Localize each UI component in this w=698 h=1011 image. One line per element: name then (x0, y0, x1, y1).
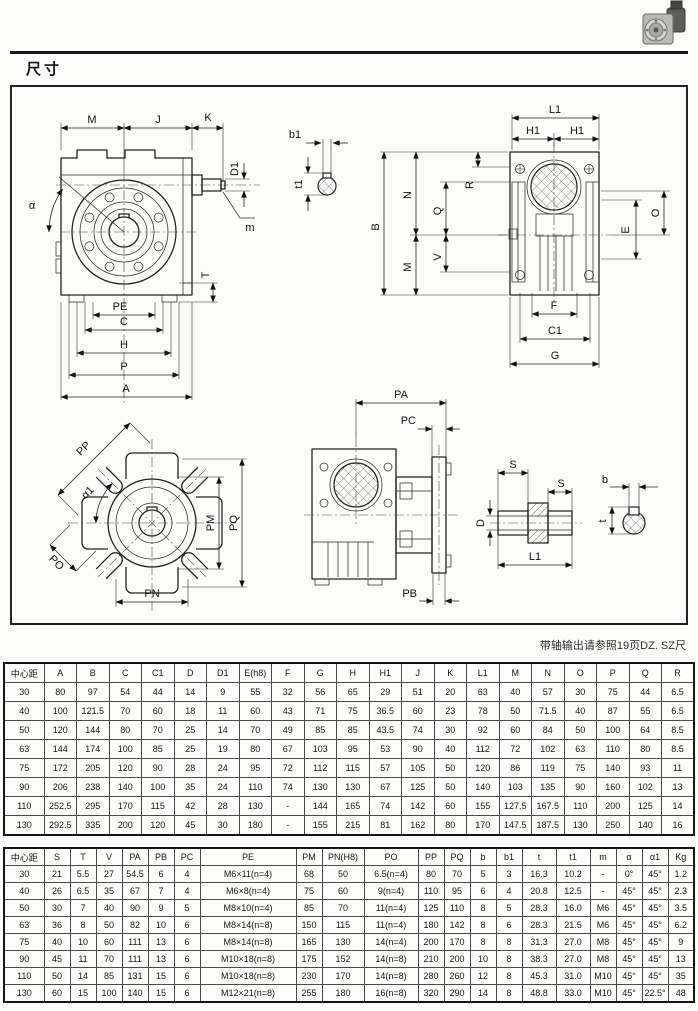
table-cell: 252.5 (44, 797, 77, 816)
table-cell: 45 (174, 816, 207, 836)
table-cell: 84 (532, 721, 565, 740)
table-cell: 119 (532, 759, 565, 778)
table-cell: 75 (597, 683, 630, 702)
table-cell: 30 (4, 683, 44, 702)
table-cell: 200 (418, 934, 444, 951)
table-cell: 25 (174, 721, 207, 740)
table-cell: 22.5° (642, 985, 668, 1003)
dim-label-pe: PE (113, 301, 128, 313)
table-cell: 74 (369, 797, 402, 816)
table-cell: 4 (496, 883, 522, 900)
column-header: Q (629, 663, 662, 683)
table-cell: 170 (109, 797, 142, 816)
table-cell: 45° (616, 968, 642, 985)
dim-label-pc: PC (401, 415, 416, 427)
column-header: L1 (467, 663, 500, 683)
table-cell: 0° (616, 866, 642, 883)
table-cell: 80 (629, 740, 662, 759)
table-cell: 111 (122, 951, 148, 968)
dim-label-t-foot: T (200, 271, 212, 278)
table-cell: 95 (444, 883, 470, 900)
table-cell: 8 (496, 985, 522, 1003)
table-cell: 200 (109, 816, 142, 836)
column-header: B (77, 663, 110, 683)
table-cell: 170 (467, 816, 500, 836)
table-cell: 27.0 (556, 951, 590, 968)
table-cell: 14 (207, 721, 240, 740)
column-header: PB (148, 848, 174, 866)
table-cell: 100 (142, 778, 175, 797)
table-cell: 230 (296, 968, 322, 985)
table-cell: 45° (642, 883, 668, 900)
table-cell: 70 (444, 866, 470, 883)
table-row: 7517220512090282495721121155710550120861… (4, 759, 694, 778)
table-cell: 50 (4, 900, 44, 917)
table-cell: 115 (142, 797, 175, 816)
table-cell: 70 (109, 702, 142, 721)
dim-label-s-right: S (557, 478, 564, 490)
table-cell: 44 (142, 683, 175, 702)
table-cell: 54.5 (122, 866, 148, 883)
table-cell: 147.5 (499, 816, 532, 836)
table-cell: 120 (109, 759, 142, 778)
table-cell: 125 (402, 778, 435, 797)
table-cell: 67 (369, 778, 402, 797)
output-flange-view-drawing: PP α1 PM PQ PO (45, 416, 260, 623)
table-cell: 95 (337, 740, 370, 759)
table-cell: 292.5 (44, 816, 77, 836)
table-cell: 32 (272, 683, 305, 702)
table-cell: 290 (444, 985, 470, 1003)
table-cell: 40 (499, 683, 532, 702)
table-cell: 10.2 (556, 866, 590, 883)
table-cell: 90 (402, 740, 435, 759)
table-header-row: 中心距STVPAPBPCPEPMPN(H8)POPPPQbb1tt1mαα1Kg (4, 848, 694, 866)
table-cell: 60 (322, 883, 364, 900)
table-cell: 70 (322, 900, 364, 917)
table-cell: 45° (616, 917, 642, 934)
table-cell: 260 (444, 968, 470, 985)
table-cell: 11 (207, 702, 240, 721)
table-cell: 8 (70, 917, 96, 934)
table-cell: 12 (470, 968, 496, 985)
table-cell: 140 (597, 759, 630, 778)
column-header: m (590, 848, 616, 866)
table-cell: 121.5 (77, 702, 110, 721)
table-cell: 110 (444, 900, 470, 917)
table-cell: 49 (272, 721, 305, 740)
table-cell: 140 (467, 778, 500, 797)
table-row: 9020623814010035241107413013067125501401… (4, 778, 694, 797)
table-cell: 26 (44, 883, 70, 900)
dim-label-d1: D1 (229, 162, 241, 176)
column-header: 中心距 (4, 663, 44, 683)
table-cell: 335 (77, 816, 110, 836)
table-cell: 71 (304, 702, 337, 721)
table-cell: 14(n=4) (364, 934, 418, 951)
dimensions-table-main: 中心距ABCC1DD1E(h8)FGHH1JKL1MNOPQR 30809754… (3, 662, 695, 836)
table-cell: 1.2 (668, 866, 694, 883)
table-cell: 50 (96, 917, 122, 934)
column-header: α1 (642, 848, 668, 866)
dim-label-k: K (204, 112, 212, 124)
table-cell: 53 (369, 740, 402, 759)
table-cell: 50 (564, 721, 597, 740)
table-cell: 75 (564, 759, 597, 778)
table-cell: 131 (122, 968, 148, 985)
table-cell: 110 (597, 740, 630, 759)
table-cell: 92 (467, 721, 500, 740)
table-cell: 64 (629, 721, 662, 740)
table-cell: 7 (70, 900, 96, 917)
column-header: C1 (142, 663, 175, 683)
table-cell: 206 (44, 778, 77, 797)
table-cell: 14 (174, 683, 207, 702)
table-cell: 8.5 (662, 740, 695, 759)
table-cell: 23 (434, 702, 467, 721)
dim-label-c: C (120, 316, 128, 328)
table-cell: 110 (239, 778, 272, 797)
table-cell: 6.5 (70, 883, 96, 900)
table-cell: 45° (616, 883, 642, 900)
table-cell: M6 (590, 917, 616, 934)
table-cell: 42 (174, 797, 207, 816)
dim-label-f: F (551, 300, 558, 312)
table-cell: 140 (109, 778, 142, 797)
table-cell: 28.3 (522, 917, 556, 934)
table-row: 90451170111136M10×18(n=8)17515214(n=8)21… (4, 951, 694, 968)
dim-label-h: H (120, 339, 128, 351)
dim-label-g: G (551, 350, 560, 362)
table-cell: 280 (418, 968, 444, 985)
table-cell: 15 (148, 985, 174, 1003)
table-cell: 60 (96, 934, 122, 951)
column-header: S (44, 848, 70, 866)
column-header: PC (174, 848, 200, 866)
column-header: PO (364, 848, 418, 866)
table-cell: 60 (402, 702, 435, 721)
table-cell: 102 (532, 740, 565, 759)
table-cell: 60 (44, 985, 70, 1003)
table-cell: 130 (4, 985, 44, 1003)
column-header: t1 (556, 848, 590, 866)
table-cell: 31.0 (556, 968, 590, 985)
table-cell: 40 (4, 883, 44, 900)
table-cell: 63 (564, 740, 597, 759)
dim-label-b: B (370, 223, 382, 230)
table-cell: 30 (207, 816, 240, 836)
table-cell: 200 (597, 797, 630, 816)
column-header: PM (296, 848, 322, 866)
table-cell: 45° (642, 917, 668, 934)
table-cell: 6.5 (662, 683, 695, 702)
table-cell: 187.5 (532, 816, 565, 836)
table-cell: 120 (44, 721, 77, 740)
table-cell: 10 (70, 934, 96, 951)
table-cell: 90 (4, 778, 44, 797)
table-cell: 165 (337, 797, 370, 816)
table-cell: 57 (369, 759, 402, 778)
table-cell: 6.5(n=4) (364, 866, 418, 883)
table-cell: 205 (77, 759, 110, 778)
column-header: J (402, 663, 435, 683)
dim-label-pn: PN (144, 588, 159, 600)
table-cell: 16(n=8) (364, 985, 418, 1003)
table-cell: 13 (148, 951, 174, 968)
table-cell: 63 (467, 683, 500, 702)
table-cell: 8.5 (662, 721, 695, 740)
dimension-drawings-panel: M J K D1 m α T (10, 85, 688, 625)
table-cell: 110 (564, 797, 597, 816)
table-cell: 144 (44, 740, 77, 759)
table-cell: 127.5 (499, 797, 532, 816)
table-cell: 5 (174, 900, 200, 917)
table-cell: M6×11(n=4) (200, 866, 296, 883)
table-cell: 54 (109, 683, 142, 702)
table-cell: 135 (532, 778, 565, 797)
header-rule (10, 51, 688, 54)
table-cell: M8×14(n=8) (200, 917, 296, 934)
dim-label-j: J (155, 114, 161, 126)
table-cell: 40 (434, 740, 467, 759)
table-cell: 2.3 (668, 883, 694, 900)
table-cell: 27.0 (556, 934, 590, 951)
table-cell: 55 (629, 702, 662, 721)
table-cell: 63 (4, 740, 44, 759)
table-cell: 50 (322, 866, 364, 883)
dim-label-v: V (432, 253, 444, 261)
flange-mount-side-view-drawing: PA PC PB (304, 389, 460, 605)
table-cell: 81 (369, 816, 402, 836)
dim-label-pp: PP (74, 439, 93, 458)
table-cell: 238 (77, 778, 110, 797)
table-cell: 5 (496, 900, 522, 917)
dim-label-s-left: S (509, 459, 516, 471)
table-cell: 85 (304, 721, 337, 740)
table-cell: 6 (174, 951, 200, 968)
table-cell: 174 (77, 740, 110, 759)
table-cell: 20.8 (522, 883, 556, 900)
table-cell: 120 (142, 816, 175, 836)
table-cell: 6 (174, 917, 200, 934)
table-cell: 38.3 (522, 951, 556, 968)
column-header: F (272, 663, 305, 683)
table-cell: 155 (304, 816, 337, 836)
table-cell: 8 (496, 934, 522, 951)
table-cell: 5 (470, 866, 496, 883)
table-cell: 210 (418, 951, 444, 968)
table-row: 6314417410085251980671039553904011272102… (4, 740, 694, 759)
table-cell: 85 (142, 740, 175, 759)
table-cell: 9 (207, 683, 240, 702)
table-cell: - (590, 883, 616, 900)
column-header: H1 (369, 663, 402, 683)
table-cell: 50 (499, 702, 532, 721)
table-cell: 9 (668, 934, 694, 951)
table-cell: 250 (597, 816, 630, 836)
table-cell: 144 (304, 797, 337, 816)
table-cell: 200 (444, 951, 470, 968)
table-cell: 162 (402, 816, 435, 836)
page-title: 尺寸 (26, 58, 62, 79)
table-cell: 31.3 (522, 934, 556, 951)
table-cell: 30 (564, 683, 597, 702)
table-cell: 78 (467, 702, 500, 721)
table-cell: 4 (174, 883, 200, 900)
table-cell: 9(n=4) (364, 883, 418, 900)
table-cell: 65 (337, 683, 370, 702)
table-cell: 75 (4, 934, 44, 951)
table-cell: 45° (642, 968, 668, 985)
dim-label-a: A (122, 383, 130, 395)
table-cell: 67 (272, 740, 305, 759)
table-cell: 215 (337, 816, 370, 836)
table-cell: 35 (174, 778, 207, 797)
table-cell: 102 (629, 778, 662, 797)
table-cell: 14 (662, 797, 695, 816)
table-cell: 6 (174, 985, 200, 1003)
table-cell: 24 (207, 778, 240, 797)
table-cell: 85 (337, 721, 370, 740)
table-cell: M6 (590, 900, 616, 917)
table-cell: 152 (322, 951, 364, 968)
table-cell: 80 (239, 740, 272, 759)
table-row: 75401060111136M8×14(n=8)16513014(n=4)200… (4, 934, 694, 951)
dim-label-c1: C1 (548, 325, 562, 337)
front-view-drawing: M J K D1 m α T (29, 112, 260, 405)
table-cell: 75 (296, 883, 322, 900)
table-cell: 130 (337, 778, 370, 797)
column-header: O (564, 663, 597, 683)
table-cell: 45° (616, 900, 642, 917)
table-cell: 30 (44, 900, 70, 917)
table-cell: M6×8(n=4) (200, 883, 296, 900)
table-cell: 6 (470, 883, 496, 900)
column-header: C (109, 663, 142, 683)
column-header: R (662, 663, 695, 683)
table-cell: 21.5 (556, 917, 590, 934)
table-cell: 43 (272, 702, 305, 721)
table-cell: 40 (44, 934, 70, 951)
table-cell: 110 (4, 797, 44, 816)
table-cell: 255 (296, 985, 322, 1003)
table-row: 110252.52951701154228130-144165741426015… (4, 797, 694, 816)
table-cell: 18 (174, 702, 207, 721)
table-cell: 142 (444, 917, 470, 934)
table-cell: 75 (337, 702, 370, 721)
column-header: M (499, 663, 532, 683)
column-header: 中心距 (4, 848, 44, 866)
table-header-row: 中心距ABCC1DD1E(h8)FGHH1JKL1MNOPQR (4, 663, 694, 683)
table-cell: 320 (418, 985, 444, 1003)
dim-label-l1: L1 (549, 104, 561, 116)
column-header: α (616, 848, 642, 866)
dim-label-t1: t1 (293, 179, 305, 188)
table-cell: 155 (467, 797, 500, 816)
dim-label-b1: b1 (289, 129, 301, 141)
table-cell: M8×10(n=4) (200, 900, 296, 917)
table-cell: 172 (44, 759, 77, 778)
table-cell: 40 (96, 900, 122, 917)
dim-label-b-key: b (602, 474, 608, 486)
dim-label-d: D (475, 519, 487, 527)
keyway-detail-b1-t1: b1 t1 (289, 129, 348, 211)
table-row: 50120144807025147049858543.5743092608450… (4, 721, 694, 740)
table-cell: 20 (434, 683, 467, 702)
table-cell: 14(n=8) (364, 968, 418, 985)
table-cell: 14(n=8) (364, 951, 418, 968)
table-cell: 16.3 (522, 866, 556, 883)
table-cell: 167.5 (532, 797, 565, 816)
table-cell: 29 (369, 683, 402, 702)
table-cell: 165 (296, 934, 322, 951)
table-cell: 45° (616, 951, 642, 968)
table-cell: 28.3 (522, 900, 556, 917)
table-cell: 100 (109, 740, 142, 759)
column-header: PP (418, 848, 444, 866)
table-cell: M10×18(n=8) (200, 951, 296, 968)
table-cell: 24 (207, 759, 240, 778)
table-cell: 110 (418, 883, 444, 900)
table-cell: 8 (470, 934, 496, 951)
table-cell: 45° (616, 985, 642, 1003)
column-header: D1 (207, 663, 240, 683)
column-header: PA (122, 848, 148, 866)
table-cell: 60 (142, 702, 175, 721)
table-cell: 130 (304, 778, 337, 797)
shaft-output-note: 带轴输出请参照19页DZ. SZ尺 (540, 637, 686, 653)
table-cell: 33.0 (556, 985, 590, 1003)
table-cell: 5.5 (70, 866, 96, 883)
gearbox-product-photo (641, 0, 693, 48)
table-cell: 3.5 (668, 900, 694, 917)
dim-label-n: N (402, 191, 414, 199)
table-cell: 13 (668, 951, 694, 968)
table-cell: 36 (44, 917, 70, 934)
table-cell: 19 (207, 740, 240, 759)
table-cell: 36.5 (369, 702, 402, 721)
table-cell: 50 (44, 968, 70, 985)
table-cell: 45° (616, 934, 642, 951)
table-cell: 60 (499, 721, 532, 740)
table-cell: 115 (322, 917, 364, 934)
table-cell: M10 (590, 985, 616, 1003)
table-cell: 16.0 (556, 900, 590, 917)
dim-label-o: O (650, 208, 662, 217)
column-header: D (174, 663, 207, 683)
table-cell: 8 (470, 900, 496, 917)
table-cell: 60 (434, 797, 467, 816)
table-cell: 103 (499, 778, 532, 797)
table-row: 110501485131156M10×18(n=8)23017014(n=8)2… (4, 968, 694, 985)
table-cell: 100 (597, 721, 630, 740)
table-cell: 71.5 (532, 702, 565, 721)
table-cell: 85 (296, 900, 322, 917)
table-cell: 130 (4, 816, 44, 836)
table-cell: 100 (96, 985, 122, 1003)
table-cell: 90 (564, 778, 597, 797)
column-header: A (44, 663, 77, 683)
table-cell: 44 (629, 683, 662, 702)
table-cell: 11(n=4) (364, 900, 418, 917)
table-row: 1306015100140156M12×21(n=8)25518016(n=8)… (4, 985, 694, 1003)
table-cell: 80 (418, 866, 444, 883)
table-cell: 11(n=4) (364, 917, 418, 934)
dim-label-po: PO (46, 553, 66, 573)
table-cell: 13 (662, 778, 695, 797)
table-cell: 10 (470, 951, 496, 968)
column-header: P (597, 663, 630, 683)
